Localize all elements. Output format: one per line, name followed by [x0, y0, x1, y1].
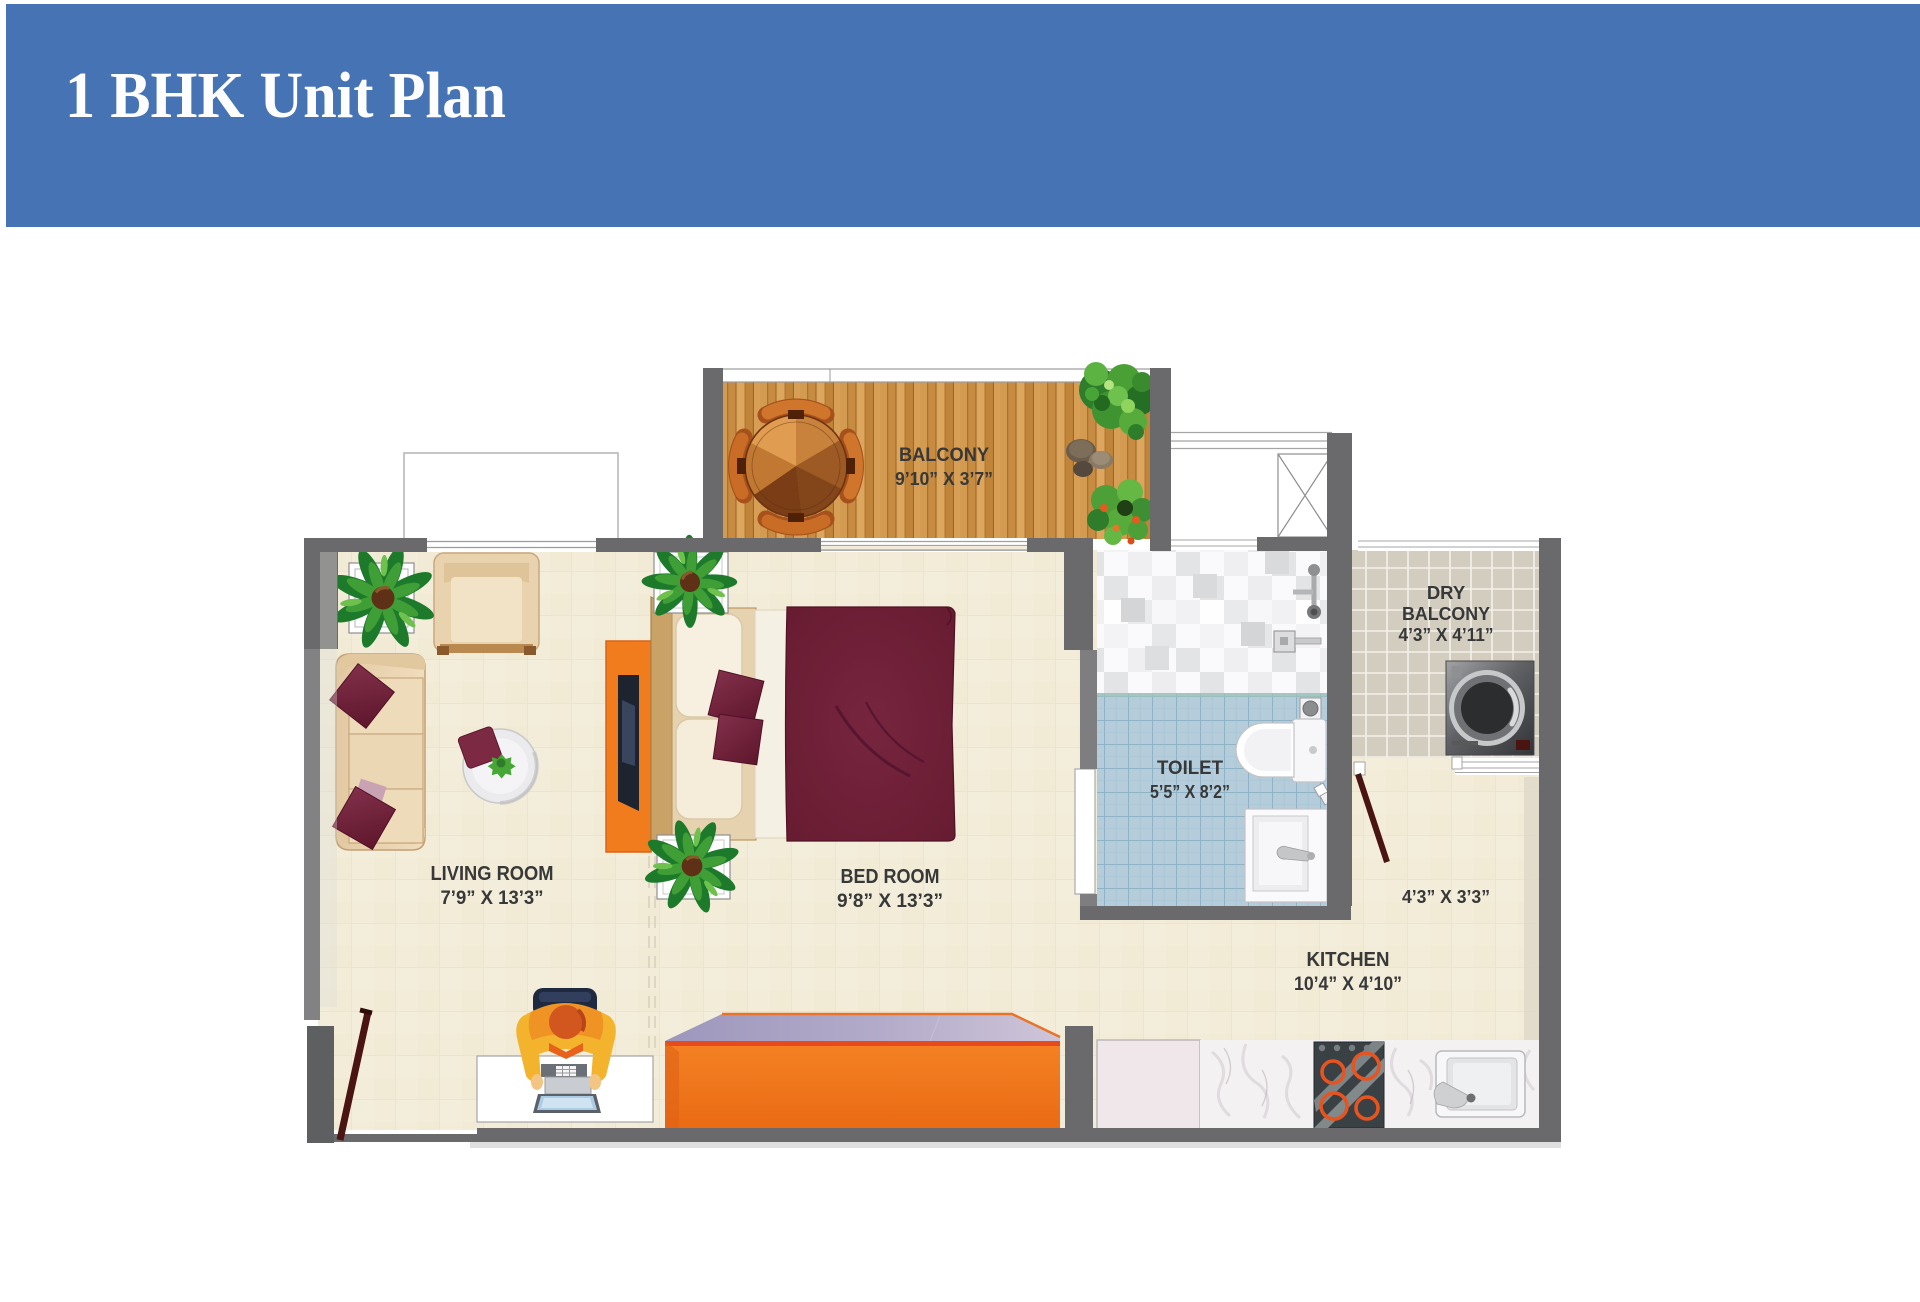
svg-text:4’3” X 4’11”: 4’3” X 4’11”: [1399, 625, 1494, 645]
svg-text:7’9” X 13’3”: 7’9” X 13’3”: [441, 888, 544, 909]
svg-text:BED ROOM: BED ROOM: [841, 866, 940, 888]
svg-text:1 BHK Unit Plan: 1 BHK Unit Plan: [65, 59, 506, 132]
svg-text:9’10” X 3’7”: 9’10” X 3’7”: [895, 468, 993, 489]
svg-text:BALCONY: BALCONY: [1402, 603, 1491, 624]
svg-text:LIVING ROOM: LIVING ROOM: [431, 863, 554, 885]
svg-text:TOILET: TOILET: [1157, 758, 1223, 779]
svg-text:DRY: DRY: [1427, 582, 1466, 603]
svg-text:BALCONY: BALCONY: [899, 445, 989, 466]
svg-text:KITCHEN: KITCHEN: [1307, 949, 1390, 971]
svg-text:5’5” X 8’2”: 5’5” X 8’2”: [1150, 781, 1230, 802]
svg-text:9’8” X 13’3”: 9’8” X 13’3”: [837, 891, 943, 912]
svg-text:4’3” X 3’3”: 4’3” X 3’3”: [1402, 886, 1490, 907]
svg-text:10’4” X 4’10”: 10’4” X 4’10”: [1294, 974, 1402, 995]
